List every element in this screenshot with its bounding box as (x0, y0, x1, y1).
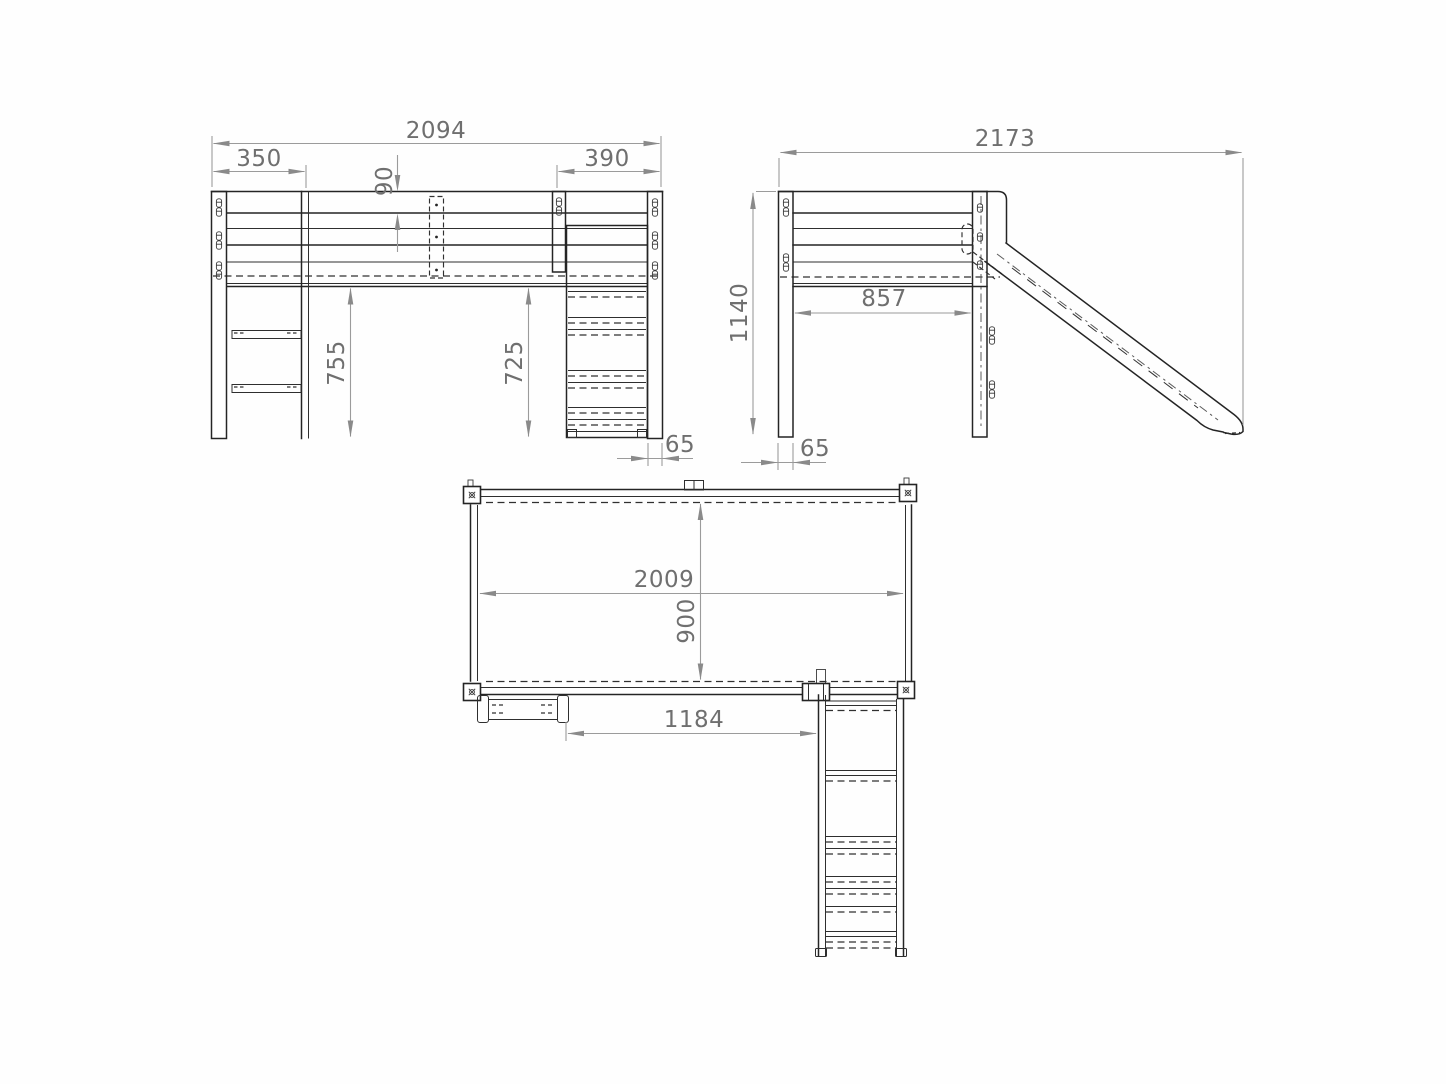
dim-front-overall-width: 2094 (406, 118, 467, 144)
dim-top-inner-length: 2009 (634, 567, 695, 593)
slide-top-piece (987, 192, 1007, 243)
loft-bed-drawing: 2094 350 390 90 755 725 (0, 0, 1446, 1084)
front-left-post (212, 192, 227, 439)
side-right-post (973, 192, 988, 438)
dim-front-shelf-width: 350 (236, 146, 281, 172)
dim-front-slide-width: 390 (584, 146, 629, 172)
side-slide (985, 243, 1243, 434)
top-slide (816, 695, 907, 957)
dim-side-overall-height: 1140 (727, 283, 753, 344)
dim-top-inner-depth: 900 (674, 598, 700, 643)
front-shelf-unit (232, 331, 301, 393)
front-inner-post (553, 192, 566, 273)
dim-front-clearance-left: 755 (324, 340, 350, 385)
technical-drawing-page: 2094 350 390 90 755 725 (0, 0, 1446, 1084)
dim-side-post-thickness: 65 (800, 436, 830, 462)
dim-side-inner-span: 857 (861, 286, 906, 312)
side-dimensions: 2173 1140 857 65 (727, 126, 1243, 470)
side-left-post (779, 192, 794, 438)
front-structure (212, 192, 663, 439)
front-screw-fittings (216, 198, 657, 279)
front-view: 2094 350 390 90 755 725 (212, 118, 696, 466)
front-center-bracket (430, 197, 444, 279)
front-slide (567, 226, 648, 438)
dim-front-clearance-right: 725 (502, 340, 528, 385)
side-structure (779, 192, 1244, 438)
dim-side-overall-depth: 2173 (975, 126, 1036, 152)
top-view: 2009 900 1184 (464, 478, 917, 957)
top-shelf (478, 696, 569, 723)
front-right-post (648, 192, 663, 439)
side-view: 2173 1140 857 65 (727, 126, 1243, 470)
dim-front-post-thickness: 65 (665, 432, 695, 458)
dim-front-rail-height: 90 (372, 166, 398, 196)
dim-top-slide-offset: 1184 (664, 707, 725, 733)
